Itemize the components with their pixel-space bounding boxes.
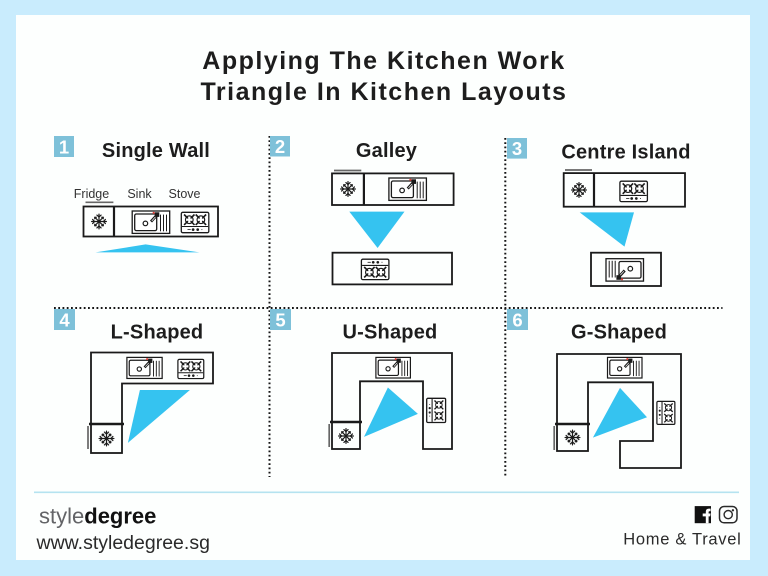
svg-text:6: 6 [512, 310, 522, 331]
svg-text:Stove: Stove [169, 187, 201, 201]
svg-text:Home & Travel: Home & Travel [623, 531, 741, 549]
svg-text:Centre Island: Centre Island [561, 142, 690, 164]
svg-text:www.styledegree.sg: www.styledegree.sg [36, 532, 210, 554]
svg-text:Single Wall: Single Wall [102, 140, 210, 162]
svg-text:2: 2 [275, 136, 285, 157]
svg-text:Applying The Kitchen Work: Applying The Kitchen Work [202, 47, 565, 75]
svg-text:U-Shaped: U-Shaped [343, 322, 438, 344]
svg-text:L-Shaped: L-Shaped [111, 322, 204, 344]
svg-text:Galley: Galley [356, 140, 418, 162]
svg-text:5: 5 [275, 310, 285, 331]
svg-text:Triangle In Kitchen Layouts: Triangle In Kitchen Layouts [201, 78, 568, 106]
svg-text:Fridge: Fridge [74, 187, 109, 201]
svg-text:3: 3 [512, 138, 522, 159]
svg-text:Sink: Sink [127, 187, 152, 201]
svg-text:styledegree: styledegree [39, 504, 156, 529]
svg-text:4: 4 [59, 310, 70, 331]
svg-text:G-Shaped: G-Shaped [571, 322, 667, 344]
svg-text:1: 1 [59, 137, 69, 158]
